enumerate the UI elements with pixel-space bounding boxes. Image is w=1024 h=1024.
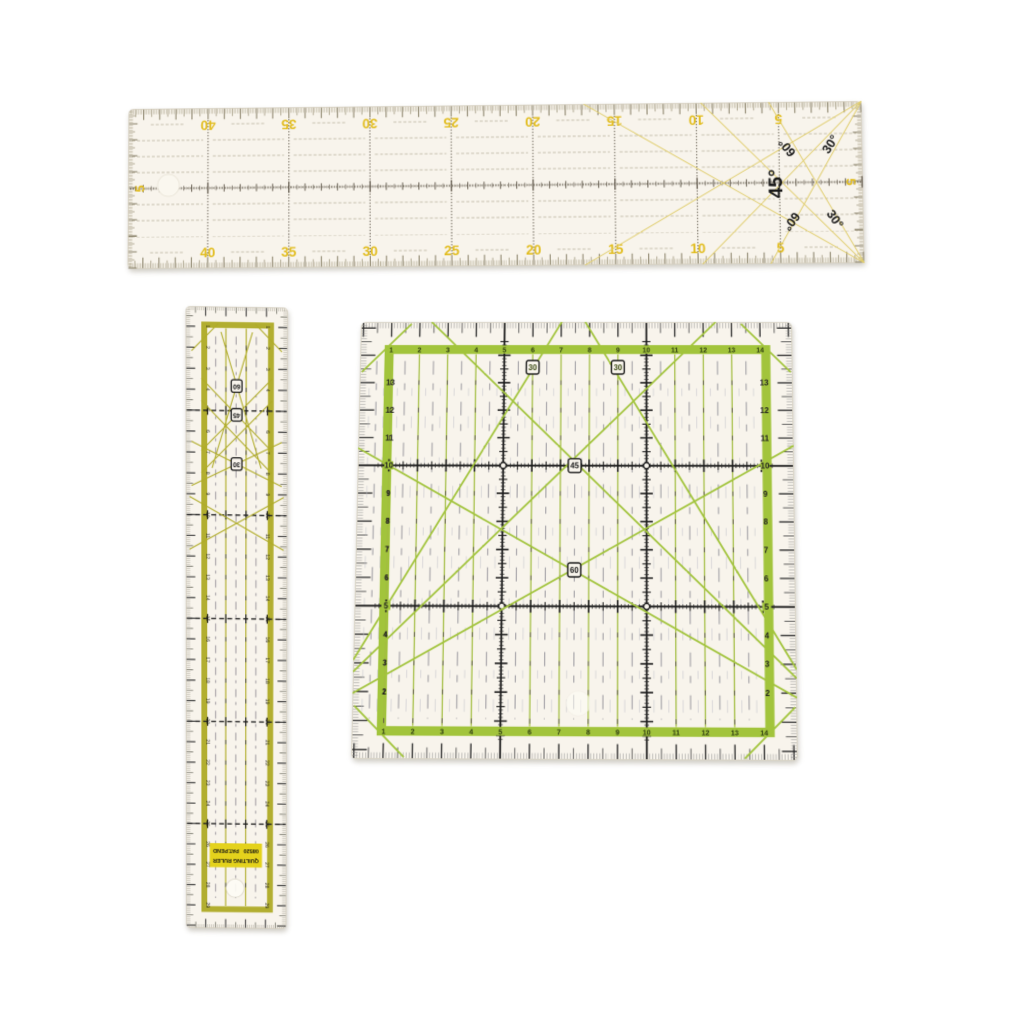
svg-text:12: 12 bbox=[385, 406, 394, 415]
svg-text:25: 25 bbox=[444, 243, 460, 258]
svg-text:12: 12 bbox=[264, 554, 270, 560]
svg-text:30: 30 bbox=[614, 363, 623, 372]
svg-text:8: 8 bbox=[385, 517, 390, 526]
svg-text:25: 25 bbox=[443, 115, 459, 130]
svg-text:QUILTING RULER: QUILTING RULER bbox=[213, 857, 259, 863]
svg-text:25: 25 bbox=[204, 821, 210, 827]
svg-text:22: 22 bbox=[264, 760, 270, 766]
svg-text:11: 11 bbox=[761, 434, 770, 443]
svg-text:35: 35 bbox=[281, 117, 297, 132]
svg-text:8: 8 bbox=[586, 729, 590, 737]
svg-text:8: 8 bbox=[588, 347, 592, 354]
svg-text:11: 11 bbox=[204, 533, 210, 539]
svg-text:5: 5 bbox=[777, 240, 785, 256]
svg-text:35: 35 bbox=[281, 244, 297, 259]
svg-text:12: 12 bbox=[702, 730, 710, 738]
svg-text:6: 6 bbox=[528, 729, 532, 737]
svg-text:17: 17 bbox=[264, 657, 270, 663]
svg-text:10: 10 bbox=[690, 241, 706, 257]
svg-text:2: 2 bbox=[418, 347, 422, 354]
svg-text:17: 17 bbox=[204, 657, 210, 663]
svg-text:27: 27 bbox=[204, 862, 210, 868]
svg-text:6: 6 bbox=[204, 430, 210, 433]
svg-text:4: 4 bbox=[264, 389, 270, 392]
svg-text:21: 21 bbox=[264, 740, 270, 746]
svg-text:12: 12 bbox=[699, 347, 707, 354]
svg-text:16: 16 bbox=[204, 636, 210, 642]
svg-text:10: 10 bbox=[264, 513, 270, 519]
svg-text:20: 20 bbox=[525, 114, 540, 129]
svg-text:2: 2 bbox=[204, 346, 210, 349]
svg-text:3: 3 bbox=[204, 367, 210, 370]
svg-text:28: 28 bbox=[204, 882, 210, 888]
svg-text:3: 3 bbox=[765, 660, 770, 670]
svg-text:08520 PAT.PEND: 08520 PAT.PEND bbox=[213, 847, 259, 853]
svg-text:19: 19 bbox=[204, 698, 210, 704]
svg-text:19: 19 bbox=[264, 699, 270, 705]
svg-text:5: 5 bbox=[132, 185, 147, 192]
svg-text:9: 9 bbox=[616, 347, 620, 354]
svg-text:11: 11 bbox=[672, 730, 680, 738]
svg-text:3: 3 bbox=[446, 347, 450, 354]
svg-text:1: 1 bbox=[264, 326, 270, 329]
svg-text:1: 1 bbox=[204, 325, 210, 328]
svg-text:11: 11 bbox=[671, 347, 679, 354]
svg-text:7: 7 bbox=[559, 347, 563, 354]
svg-text:7: 7 bbox=[557, 729, 561, 737]
svg-text:15: 15 bbox=[204, 616, 210, 622]
svg-text:20: 20 bbox=[204, 718, 210, 724]
svg-text:3: 3 bbox=[264, 368, 270, 371]
svg-text:18: 18 bbox=[264, 678, 270, 684]
svg-text:1: 1 bbox=[389, 347, 393, 354]
svg-text:28: 28 bbox=[263, 883, 269, 889]
svg-text:2: 2 bbox=[264, 347, 270, 350]
svg-text:2: 2 bbox=[411, 728, 415, 736]
svg-text:9: 9 bbox=[615, 729, 619, 737]
svg-text:10: 10 bbox=[688, 112, 704, 127]
svg-text:30: 30 bbox=[528, 363, 537, 372]
svg-text:2: 2 bbox=[765, 688, 770, 698]
svg-text:7: 7 bbox=[764, 546, 769, 555]
svg-text:13: 13 bbox=[386, 378, 395, 387]
svg-text:3: 3 bbox=[382, 658, 387, 668]
svg-text:30: 30 bbox=[362, 116, 377, 131]
svg-text:8: 8 bbox=[264, 472, 270, 475]
svg-text:9: 9 bbox=[204, 492, 210, 495]
svg-text:26: 26 bbox=[204, 841, 210, 847]
svg-text:7: 7 bbox=[204, 451, 210, 454]
svg-text:5: 5 bbox=[498, 729, 502, 737]
svg-text:9: 9 bbox=[763, 489, 768, 498]
svg-text:23: 23 bbox=[204, 780, 210, 786]
svg-text:10: 10 bbox=[761, 461, 770, 470]
svg-text:20: 20 bbox=[264, 719, 270, 725]
svg-text:1: 1 bbox=[381, 728, 385, 736]
svg-text:8: 8 bbox=[204, 472, 210, 475]
svg-text:10: 10 bbox=[204, 512, 210, 518]
svg-text:29: 29 bbox=[204, 902, 210, 908]
svg-text:45: 45 bbox=[233, 411, 241, 418]
svg-text:7: 7 bbox=[385, 545, 390, 554]
svg-text:29: 29 bbox=[263, 903, 269, 909]
svg-text:9: 9 bbox=[386, 489, 391, 498]
svg-text:18: 18 bbox=[204, 677, 210, 683]
svg-text:6: 6 bbox=[764, 574, 769, 583]
svg-text:5: 5 bbox=[843, 178, 859, 185]
svg-text:16: 16 bbox=[264, 637, 270, 643]
svg-text:40: 40 bbox=[201, 117, 216, 132]
svg-text:6: 6 bbox=[384, 573, 389, 582]
svg-text:40: 40 bbox=[200, 245, 215, 260]
svg-text:60: 60 bbox=[570, 565, 579, 574]
svg-text:14: 14 bbox=[756, 347, 764, 354]
svg-text:22: 22 bbox=[204, 759, 210, 765]
svg-text:27: 27 bbox=[263, 862, 269, 868]
svg-text:10: 10 bbox=[384, 461, 393, 470]
svg-text:60: 60 bbox=[233, 382, 241, 389]
svg-text:45: 45 bbox=[570, 461, 579, 470]
svg-text:45°: 45° bbox=[765, 169, 787, 198]
svg-text:10: 10 bbox=[643, 347, 651, 354]
svg-text:10: 10 bbox=[643, 729, 651, 737]
svg-text:13: 13 bbox=[204, 574, 210, 580]
svg-text:25: 25 bbox=[264, 821, 270, 827]
svg-text:13: 13 bbox=[731, 730, 739, 738]
svg-text:20: 20 bbox=[526, 242, 541, 258]
svg-text:11: 11 bbox=[385, 433, 394, 442]
svg-text:15: 15 bbox=[264, 616, 270, 622]
svg-text:5: 5 bbox=[264, 410, 270, 413]
svg-text:6: 6 bbox=[264, 431, 270, 434]
svg-text:12: 12 bbox=[204, 553, 210, 559]
svg-text:11: 11 bbox=[264, 534, 270, 540]
svg-text:13: 13 bbox=[264, 575, 270, 581]
svg-text:15: 15 bbox=[606, 113, 622, 128]
svg-text:4: 4 bbox=[204, 388, 210, 391]
svg-text:2: 2 bbox=[382, 687, 387, 697]
svg-text:14: 14 bbox=[204, 595, 210, 601]
svg-text:14: 14 bbox=[760, 730, 768, 738]
svg-text:21: 21 bbox=[204, 739, 210, 745]
svg-text:6: 6 bbox=[531, 347, 535, 354]
svg-text:30: 30 bbox=[233, 460, 241, 467]
svg-text:8: 8 bbox=[763, 517, 768, 526]
svg-text:30: 30 bbox=[362, 244, 377, 259]
svg-text:3: 3 bbox=[440, 729, 444, 737]
svg-text:13: 13 bbox=[728, 347, 736, 354]
svg-text:4: 4 bbox=[469, 729, 473, 737]
svg-text:12: 12 bbox=[760, 406, 769, 415]
svg-text:4: 4 bbox=[474, 347, 478, 354]
svg-text:9: 9 bbox=[264, 493, 270, 496]
svg-text:26: 26 bbox=[263, 842, 269, 848]
svg-text:14: 14 bbox=[264, 596, 270, 602]
svg-text:24: 24 bbox=[264, 801, 270, 807]
svg-text:5: 5 bbox=[503, 347, 507, 354]
svg-text:13: 13 bbox=[760, 378, 769, 387]
svg-text:24: 24 bbox=[204, 800, 210, 806]
svg-text:23: 23 bbox=[264, 781, 270, 787]
svg-text:7: 7 bbox=[264, 452, 270, 455]
